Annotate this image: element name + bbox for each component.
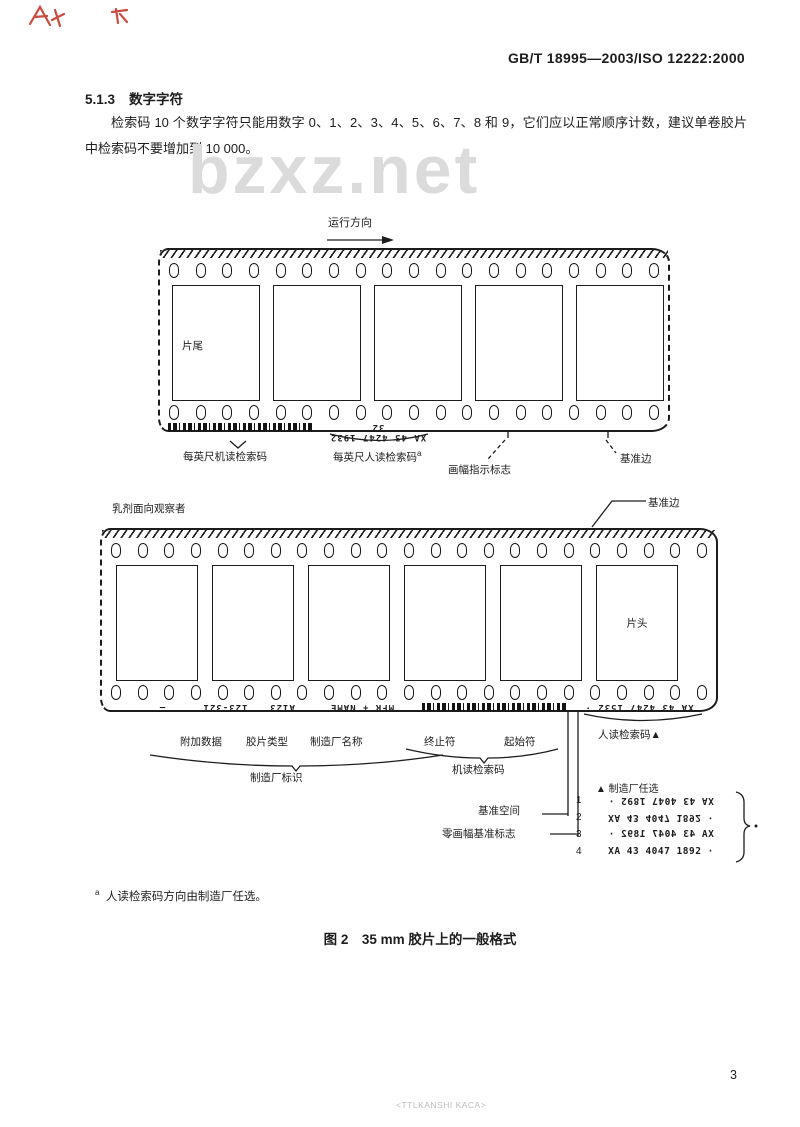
film-frame: 片头 bbox=[596, 565, 678, 681]
sprocket-hole bbox=[244, 685, 254, 700]
sprocket-hole bbox=[617, 685, 627, 700]
footnote-text: 人读检索码方向由制造厂任选。 bbox=[106, 891, 267, 903]
sprocket-hole bbox=[462, 263, 472, 278]
sprocket-hole bbox=[276, 405, 286, 420]
edge-film-type: A123 bbox=[260, 702, 304, 712]
sprocket-hole bbox=[542, 405, 552, 420]
sprocket-hole bbox=[649, 405, 659, 420]
sprocket-hole bbox=[249, 405, 259, 420]
red-scribble-3 bbox=[112, 9, 127, 23]
hatched-edge bbox=[102, 530, 716, 538]
edge-code: XA 43 4247 1532 · bbox=[572, 702, 706, 712]
edge-print-band: — 123-321 A123 MFR + NAME XA 43 4247 153… bbox=[102, 701, 716, 714]
document-page: GB/T 18995—2003/ISO 12222:2000 5.1.3数字字符… bbox=[0, 0, 800, 1127]
sprocket-hole bbox=[670, 685, 680, 700]
edge-manufacturer-name: MFR + NAME bbox=[312, 702, 412, 712]
sprocket-hole bbox=[516, 405, 526, 420]
sprocket-hole bbox=[222, 263, 232, 278]
film-frame bbox=[116, 565, 198, 681]
label-manufacturer-name: 制造厂名称 bbox=[310, 734, 363, 749]
sprocket-hole bbox=[244, 543, 254, 558]
sprocket-hole bbox=[537, 543, 547, 558]
sprocket-hole bbox=[382, 263, 392, 278]
strip2-top-edge-leader bbox=[592, 501, 646, 527]
label-film-type: 胶片类型 bbox=[246, 734, 288, 749]
edge-print-band: XA 43 4247 1932 32 bbox=[160, 421, 668, 434]
site-watermark: bzxz.net bbox=[188, 136, 480, 204]
sprocket-hole bbox=[271, 685, 281, 700]
film-frame bbox=[212, 565, 294, 681]
sprocket-hole bbox=[569, 405, 579, 420]
sprocket-hole bbox=[596, 405, 606, 420]
sprocket-hole bbox=[196, 405, 206, 420]
sprocket-hole bbox=[569, 263, 579, 278]
sprocket-hole bbox=[404, 685, 414, 700]
section-heading: 5.1.3数字字符 bbox=[85, 88, 183, 108]
sprocket-holes-row bbox=[102, 684, 716, 700]
sprocket-hole bbox=[164, 543, 174, 558]
sprocket-hole bbox=[169, 263, 179, 278]
film-frame bbox=[308, 565, 390, 681]
film-strip-1: 片尾 XA 43 4247 1932 32 bbox=[158, 248, 670, 432]
edge-dash: — bbox=[152, 702, 172, 712]
red-scribble-1 bbox=[30, 7, 50, 25]
label-start-character: 起始符 bbox=[504, 734, 536, 749]
option-number: 3 bbox=[576, 829, 582, 840]
sprocket-hole bbox=[596, 263, 606, 278]
sprocket-hole bbox=[218, 685, 228, 700]
sprocket-hole bbox=[382, 405, 392, 420]
options-header: ▲ 制造厂任选 bbox=[596, 780, 659, 795]
standard-number: GB/T 18995—2003/ISO 12222:2000 bbox=[508, 50, 745, 66]
machine-readable-barcode bbox=[168, 423, 312, 431]
option-code-rotated: XA 43 4047 1892 · bbox=[596, 795, 726, 806]
label-additional-data: 附加数据 bbox=[180, 734, 222, 749]
options-brace-dot bbox=[755, 825, 758, 828]
sprocket-hole bbox=[138, 543, 148, 558]
label-machine-readable-code: 每英尺机读检索码 bbox=[183, 449, 267, 464]
hatched-edge bbox=[160, 250, 668, 258]
option-row: 1 XA 43 4047 1892 · bbox=[576, 794, 736, 809]
sprocket-hole bbox=[436, 263, 446, 278]
sprocket-hole bbox=[169, 405, 179, 420]
sprocket-hole bbox=[617, 543, 627, 558]
sprocket-hole bbox=[431, 543, 441, 558]
reference-edge-leader bbox=[606, 440, 616, 453]
option-row: 4 XA 43 4047 1892 · bbox=[576, 845, 736, 860]
film-frame bbox=[576, 285, 664, 401]
sprocket-hole bbox=[542, 263, 552, 278]
scan-stamp: <TTLKANSHI KACA> bbox=[396, 1100, 486, 1110]
sprocket-hole bbox=[590, 685, 600, 700]
page-number: 3 bbox=[730, 1068, 737, 1082]
machine-code-brace bbox=[406, 749, 558, 763]
edge-code: XA 43 4247 1932 32 bbox=[323, 422, 433, 442]
direction-arrow-head bbox=[382, 236, 394, 244]
frame-label-head: 片头 bbox=[627, 616, 648, 631]
sprocket-hole bbox=[489, 263, 499, 278]
sprocket-hole bbox=[222, 405, 232, 420]
sprocket-hole bbox=[590, 543, 600, 558]
film-frame bbox=[273, 285, 361, 401]
option-code-flipped-vertical: XA 43 4047 1892 · bbox=[596, 812, 726, 823]
sprocket-hole bbox=[670, 543, 680, 558]
sprocket-hole bbox=[489, 405, 499, 420]
sprocket-hole bbox=[516, 263, 526, 278]
sprocket-hole bbox=[409, 405, 419, 420]
sprocket-hole bbox=[622, 263, 632, 278]
label-zero-frame-mark: 零画幅基准标志 bbox=[442, 826, 516, 841]
label-manufacturer-id: 制造厂标识 bbox=[250, 770, 303, 785]
option-code-normal: XA 43 4047 1892 · bbox=[596, 846, 726, 857]
sprocket-hole bbox=[351, 543, 361, 558]
label-machine-readable-code: 机读检索码 bbox=[452, 762, 505, 777]
section-number: 5.1.3 bbox=[85, 92, 115, 107]
sprocket-hole bbox=[356, 263, 366, 278]
sprocket-hole bbox=[276, 263, 286, 278]
sprocket-hole bbox=[649, 263, 659, 278]
film-frame bbox=[404, 565, 486, 681]
film-frame bbox=[500, 565, 582, 681]
red-scribble-2 bbox=[52, 10, 64, 26]
label-human-readable-code: 每英尺人读检索码a bbox=[333, 449, 421, 465]
sprocket-hole bbox=[302, 263, 312, 278]
edge-additional-data: 123-321 bbox=[194, 702, 256, 712]
mfr-id-brace bbox=[150, 755, 443, 771]
label-reference-edge: 基准边 bbox=[620, 451, 652, 466]
sprocket-hole bbox=[218, 543, 228, 558]
direction-of-travel-label: 运行方向 bbox=[328, 214, 372, 230]
sprocket-hole bbox=[484, 685, 494, 700]
option-number: 2 bbox=[576, 812, 582, 823]
figure-caption: 图 2 35 mm 胶片上的一般格式 bbox=[0, 928, 800, 948]
sprocket-hole bbox=[324, 543, 334, 558]
sprocket-hole bbox=[297, 543, 307, 558]
footnote-ref: a bbox=[417, 449, 421, 458]
reference-space-connector bbox=[542, 712, 568, 816]
sprocket-hole bbox=[377, 543, 387, 558]
sprocket-holes-row bbox=[160, 404, 668, 420]
sprocket-hole bbox=[196, 263, 206, 278]
sprocket-hole bbox=[138, 685, 148, 700]
sprocket-hole bbox=[431, 685, 441, 700]
label-emulsion-side: 乳剂面向观察者 bbox=[112, 501, 186, 516]
option-code-mirrored: XA 43 4047 1892 · bbox=[596, 829, 726, 840]
footnote: a 人读检索码方向由制造厂任选。 bbox=[95, 888, 267, 904]
film-frame bbox=[475, 285, 563, 401]
frames-row: 片尾 bbox=[172, 285, 664, 401]
sprocket-hole bbox=[510, 543, 520, 558]
label-strip2-reference-edge: 基准边 bbox=[648, 495, 680, 510]
label-reference-space: 基准空间 bbox=[478, 803, 520, 818]
label-frame-indicator-mark: 画幅指示标志 bbox=[448, 462, 511, 477]
sprocket-hole bbox=[537, 685, 547, 700]
strip2-code-underbrace bbox=[584, 714, 702, 721]
sprocket-hole bbox=[510, 685, 520, 700]
sprocket-hole bbox=[697, 543, 707, 558]
sprocket-hole bbox=[191, 685, 201, 700]
sprocket-hole bbox=[564, 543, 574, 558]
sprocket-hole bbox=[324, 685, 334, 700]
frames-row: 片头 bbox=[116, 565, 678, 681]
film-strip-2: 片头 — 123-321 A123 MFR + NAME XA 43 4247 … bbox=[100, 528, 718, 712]
frame-label-tail: 片尾 bbox=[182, 338, 203, 353]
sprocket-hole bbox=[697, 685, 707, 700]
sprocket-hole bbox=[111, 685, 121, 700]
option-row: 2 XA 43 4047 1892 · bbox=[576, 811, 736, 826]
sprocket-hole bbox=[457, 543, 467, 558]
option-number: 1 bbox=[576, 795, 582, 806]
sprocket-hole bbox=[436, 405, 446, 420]
sprocket-holes-row bbox=[160, 262, 668, 278]
sprocket-hole bbox=[297, 685, 307, 700]
sprocket-holes-row bbox=[102, 542, 716, 558]
sprocket-hole bbox=[644, 685, 654, 700]
frame-mark-leader bbox=[488, 440, 505, 459]
sprocket-hole bbox=[191, 543, 201, 558]
sprocket-hole bbox=[564, 685, 574, 700]
sprocket-hole bbox=[462, 405, 472, 420]
label-human-readable-code: 人读检索码▲ bbox=[598, 727, 661, 742]
sprocket-hole bbox=[351, 685, 361, 700]
sprocket-hole bbox=[329, 263, 339, 278]
film-frame bbox=[374, 285, 462, 401]
label-human-readable-code-text: 每英尺人读检索码 bbox=[333, 452, 417, 464]
section-title: 数字字符 bbox=[129, 92, 183, 107]
sprocket-hole bbox=[111, 543, 121, 558]
footnote-marker: a bbox=[95, 888, 99, 897]
option-row: 3 XA 43 4047 1892 · bbox=[576, 828, 736, 843]
sprocket-hole bbox=[484, 543, 494, 558]
machine-readable-barcode bbox=[422, 703, 566, 711]
zero-frame-connector bbox=[550, 712, 578, 836]
sprocket-hole bbox=[622, 405, 632, 420]
sprocket-hole bbox=[249, 263, 259, 278]
sprocket-hole bbox=[457, 685, 467, 700]
options-brace bbox=[736, 792, 750, 862]
sprocket-hole bbox=[644, 543, 654, 558]
option-number: 4 bbox=[576, 846, 582, 857]
strip1-barcode-caret bbox=[230, 441, 246, 448]
sprocket-hole bbox=[377, 685, 387, 700]
sprocket-hole bbox=[302, 405, 312, 420]
label-stop-character: 终止符 bbox=[424, 734, 456, 749]
sprocket-hole bbox=[164, 685, 174, 700]
sprocket-hole bbox=[356, 405, 366, 420]
film-frame: 片尾 bbox=[172, 285, 260, 401]
sprocket-hole bbox=[329, 405, 339, 420]
sprocket-hole bbox=[271, 543, 281, 558]
sprocket-hole bbox=[404, 543, 414, 558]
sprocket-hole bbox=[409, 263, 419, 278]
